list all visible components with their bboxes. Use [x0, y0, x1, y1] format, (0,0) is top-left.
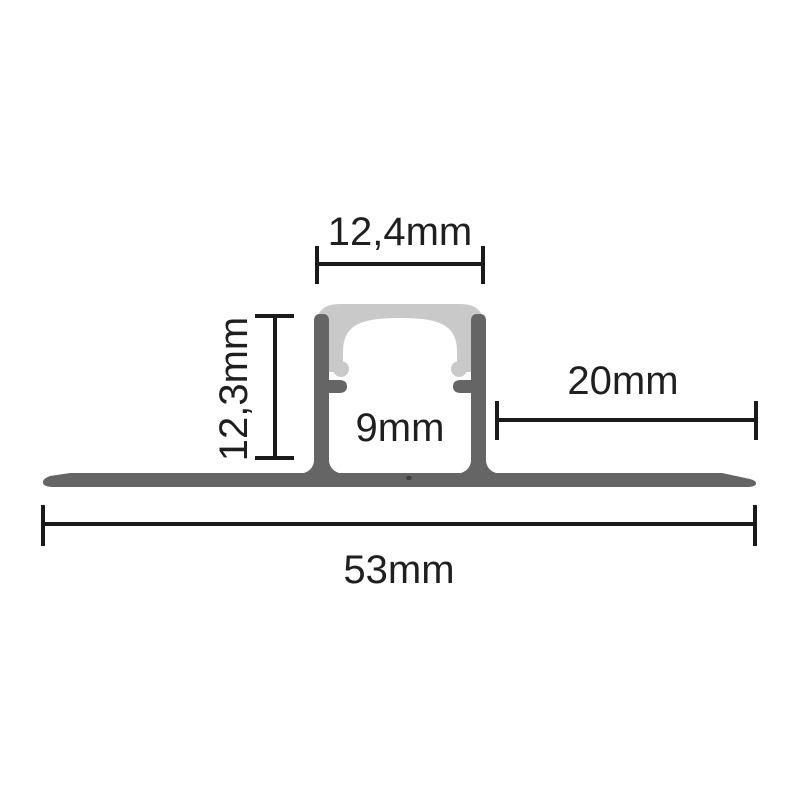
dimension-label-top-width: 12,4mm	[328, 212, 473, 252]
dimension-right-flange	[497, 401, 756, 440]
dimension-label-total-width: 53mm	[343, 550, 454, 590]
dimension-label-height: 12,3mm	[214, 317, 254, 462]
left-wall-inner-fillet	[329, 461, 339, 473]
left-clip-ridge	[329, 380, 347, 393]
diffuser-left-clip	[333, 361, 349, 377]
left-wall-outer-fillet	[304, 461, 314, 473]
dimension-height	[255, 316, 294, 458]
profile-base-flange	[43, 473, 756, 487]
right-wall-outer-fillet	[486, 461, 496, 473]
profile-technical-drawing	[0, 0, 800, 800]
right-wall-inner-fillet	[461, 461, 471, 473]
dimension-label-inner-width: 9mm	[356, 408, 445, 448]
profile-left-wall	[314, 314, 329, 473]
right-clip-ridge	[453, 380, 471, 393]
profile-right-wall	[471, 314, 486, 473]
diffuser-right-clip	[451, 361, 467, 377]
dimension-label-right-flange: 20mm	[567, 361, 678, 401]
dimension-total-width	[43, 505, 755, 546]
base-center-mark	[406, 476, 412, 480]
diagram-canvas: 12,4mm 12,3mm 20mm 9mm 53mm	[0, 0, 800, 800]
